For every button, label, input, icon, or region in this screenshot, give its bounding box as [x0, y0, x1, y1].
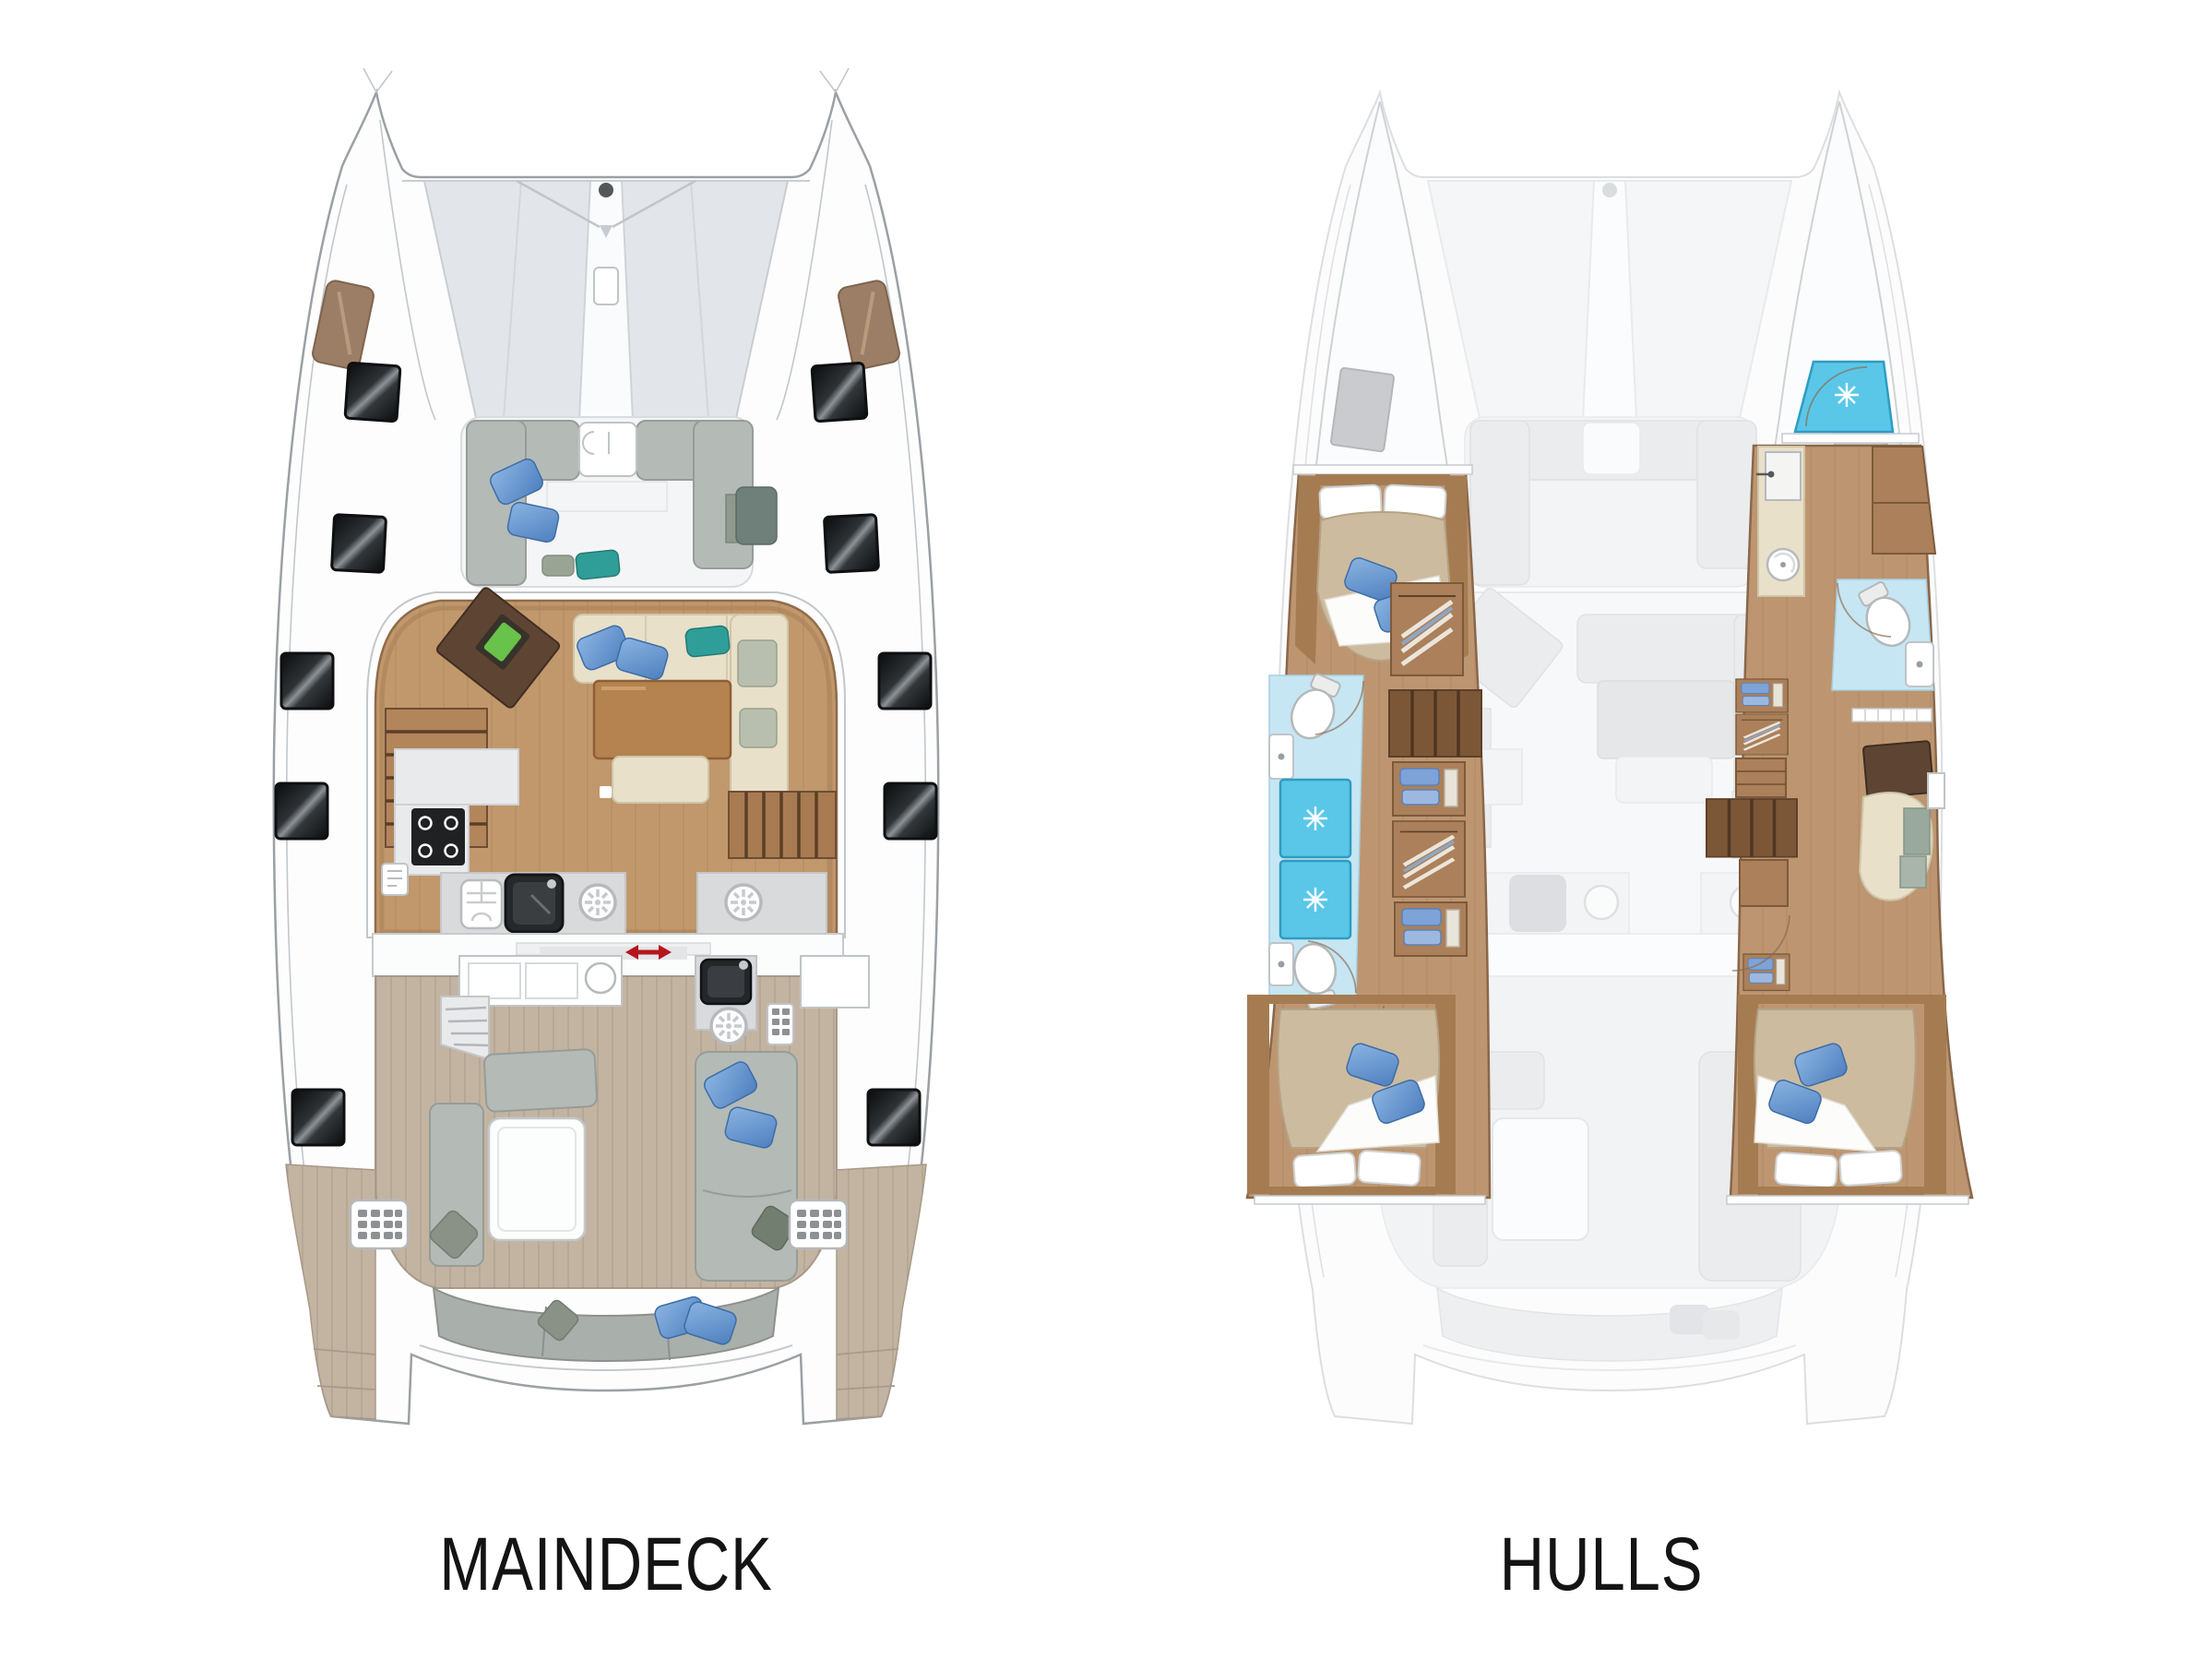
aft-chaise	[696, 1052, 798, 1281]
deck-hatch-icon	[292, 1090, 344, 1145]
floor-plans-canvas	[0, 0, 2212, 1659]
port-bathroom	[1269, 671, 1363, 1011]
deck-hatch-icon	[885, 783, 936, 839]
teal-pillow-icon	[685, 626, 731, 658]
deck-hatch-icon	[812, 363, 867, 422]
stairs-starboard	[729, 792, 836, 858]
bow-hatch-icon	[1330, 367, 1394, 451]
cooktop	[411, 808, 465, 865]
deck-hatch-icon	[281, 653, 333, 709]
deck-hatch-icon	[879, 653, 931, 709]
dishwasher-icon	[461, 880, 502, 928]
deck-hatch-icon	[276, 783, 327, 839]
burner-icon	[711, 1009, 746, 1044]
deck-hatch-icon	[331, 515, 386, 573]
burner-icon	[580, 885, 615, 920]
deck-hatch-icon	[868, 1090, 920, 1145]
maindeck-label: MAINDECK	[372, 1521, 840, 1609]
cockpit-table	[489, 1118, 585, 1240]
salon	[375, 586, 837, 934]
maindeck-plan	[274, 68, 938, 1424]
teal-pillow-icon	[576, 550, 621, 580]
forestay-furler-icon	[599, 183, 613, 197]
salon-bench	[612, 757, 708, 803]
burner-icon	[726, 885, 761, 920]
vent-grille-icon	[351, 1200, 408, 1248]
dining-table	[594, 681, 731, 758]
white-pillow-icon	[1775, 1152, 1837, 1188]
white-pillow-icon	[1358, 1151, 1421, 1187]
vent-grille-icon	[790, 1200, 847, 1248]
deck-hatch-icon	[824, 515, 878, 573]
white-pillow-icon	[1839, 1151, 1902, 1187]
port-hull-interior	[1247, 465, 1490, 1204]
bow-pulpits	[363, 68, 849, 92]
forward-cockpit-lounge	[461, 417, 777, 587]
deck-hatch-icon	[345, 363, 400, 422]
floor-plan-page: MAINDECK HULLS	[0, 0, 2212, 1659]
hulls-label: HULLS	[1367, 1521, 1836, 1609]
hulls-plan	[1247, 92, 1972, 1424]
white-pillow-icon	[1293, 1152, 1356, 1188]
cockpit-sink	[586, 963, 615, 993]
starboard-stairs	[1707, 799, 1797, 857]
galley-sink	[505, 875, 563, 932]
windlass	[594, 268, 618, 304]
